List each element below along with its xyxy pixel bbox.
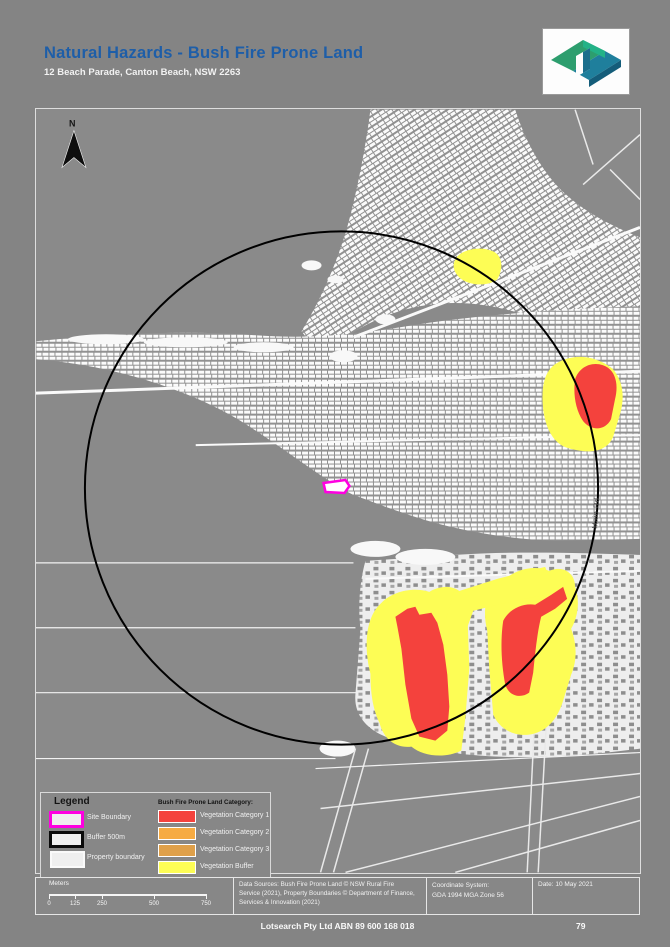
scale-tick [102, 894, 103, 899]
footer-company-line: Lotsearch Pty Ltd ABN 89 600 168 018 [35, 921, 640, 931]
scale-bar [49, 894, 207, 896]
lotsearch-logo [543, 29, 629, 94]
legend-category-label: Vegetation Category 3 [200, 846, 269, 853]
property-boundary-swatch [50, 851, 85, 868]
site-boundary [324, 480, 350, 493]
legend-item-label: Site Boundary [87, 814, 131, 821]
report-page: { "header": { "title": "Natural Hazards … [0, 0, 670, 947]
buffer-swatch [49, 831, 84, 848]
veg-cat1-swatch [158, 810, 196, 823]
legend-category-label: Vegetation Category 1 [200, 812, 269, 819]
map-date: Date: 10 May 2021 [538, 881, 593, 888]
page-title: Natural Hazards - Bush Fire Prone Land [44, 44, 363, 63]
page-subtitle: 12 Beach Parade, Canton Beach, NSW 2263 [44, 67, 240, 78]
coordinate-system-value: GDA 1994 MGA Zone 56 [432, 891, 527, 901]
data-sources-box: Data Sources: Bush Fire Prone Land © NSW… [234, 878, 427, 914]
coordinate-system-box: Coordinate System: GDA 1994 MGA Zone 56 [427, 878, 533, 914]
scale-tick [49, 894, 50, 899]
lotsearch-logo-icon [543, 29, 629, 94]
page-number: 79 [576, 921, 585, 931]
attribution-line: Service (2021), Property Boundaries © De… [239, 890, 421, 899]
scale-tick [154, 894, 155, 899]
legend-item-label: Property boundary [87, 854, 145, 861]
scale-tick-label: 250 [97, 901, 107, 907]
site-boundary-swatch [49, 811, 84, 828]
scale-unit-label: Meters [49, 880, 69, 887]
veg-cat3-swatch [158, 844, 196, 857]
legend-category-title: Bush Fire Prone Land Category: [158, 799, 253, 806]
scale-tick [206, 894, 207, 899]
legend-panel: Legend Site Boundary Buffer 500m Propert… [40, 792, 271, 878]
legend-category-label: Vegetation Buffer [200, 863, 254, 870]
map-canvas: Main Rd N [36, 109, 640, 873]
north-label: N [69, 119, 75, 129]
date-box: Date: 10 May 2021 [533, 878, 639, 914]
scale-tick-label: 125 [70, 901, 80, 907]
legend-item-label: Buffer 500m [87, 834, 125, 841]
coordinate-system-label: Coordinate System: [432, 881, 527, 891]
veg-buffer-swatch [158, 861, 196, 874]
map-frame: Main Rd N [35, 108, 641, 874]
scale-tick [75, 894, 76, 899]
scale-tick-label: 0 [47, 901, 50, 907]
attribution-line: Services & Innovation (2021) [239, 899, 421, 908]
legend-category-label: Vegetation Category 2 [200, 829, 269, 836]
scale-tick-label: 500 [149, 901, 159, 907]
attribution-line: Data Sources: Bush Fire Prone Land © NSW… [239, 881, 421, 890]
scale-tick-label: 750 [201, 901, 211, 907]
veg-cat2-swatch [158, 827, 196, 840]
info-band: Meters 0 125 250 500 750 Data Sources: B… [35, 877, 640, 915]
scale-bar-box: Meters 0 125 250 500 750 [36, 878, 234, 914]
legend-title: Legend [54, 796, 90, 807]
